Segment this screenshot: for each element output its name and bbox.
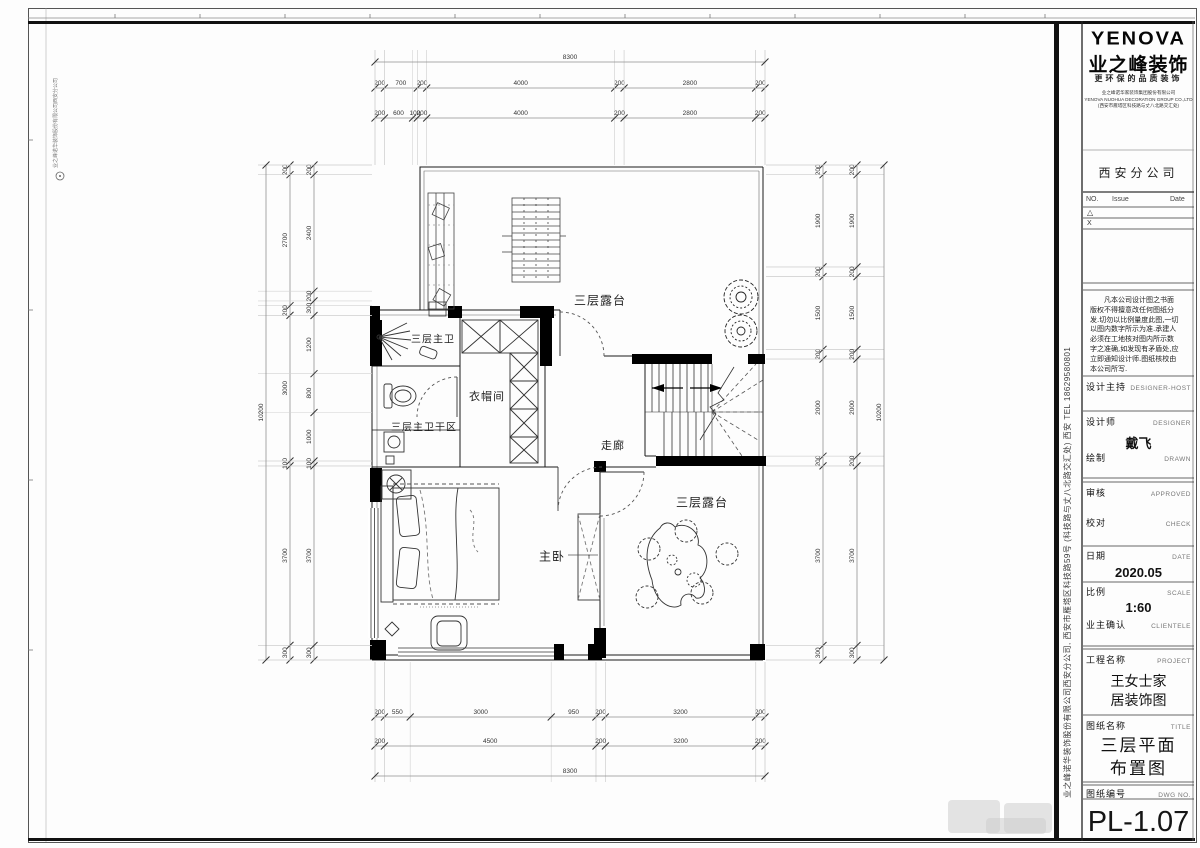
dim-label: 550 — [392, 709, 403, 716]
field-client-confirm: 业主确认 CLIENTELE — [1086, 618, 1191, 631]
dimension-annotations: 2007002004000200280020020060010020040002… — [258, 50, 888, 782]
dim-label: 200 — [815, 455, 822, 466]
dim-label: 4500 — [483, 738, 498, 745]
dim-label: 3700 — [849, 548, 856, 563]
field-design-host: 设计主持 DESIGNER-HOST — [1086, 380, 1191, 393]
drawing-number: PL-1.07 — [1083, 806, 1194, 839]
edge-strip-text: 业之峰诺华装饰股份有限公司西安分公司 — [52, 78, 59, 168]
brand-slogan: 更环保的品质装饰 — [1083, 73, 1194, 84]
dim-label: 200 — [306, 164, 313, 175]
field-drawing-title: 图纸名称 TITLE — [1086, 719, 1191, 732]
dim-label: 300 — [282, 647, 289, 658]
dim-label: 2800 — [683, 80, 698, 87]
date-value: 2020.05 — [1083, 565, 1194, 580]
field-project: 工程名称 PROJECT — [1086, 653, 1191, 666]
company-strip-text: 业之峰诺华装饰股份有限公司西安分公司, 西安市雁塔区科技路59号 (科技路与丈八… — [1062, 347, 1073, 798]
rev-col-issue: Issue — [1112, 196, 1129, 203]
dim-label: 3700 — [815, 548, 822, 563]
dim-label: 3200 — [673, 738, 688, 745]
brand-company-lines: 业之峰诺华家装饰集团股份有限公司 YENOVA NUOHUA DECORATIO… — [1083, 90, 1194, 110]
field-dwg-no: 图纸编号 DWG NO. — [1086, 787, 1191, 800]
dim-label: 200 — [417, 80, 428, 87]
dim-label: 200 — [374, 110, 385, 117]
dim-label: 300 — [815, 647, 822, 658]
dim-label: 300 — [849, 647, 856, 658]
dim-label: 200 — [755, 738, 766, 745]
dim-label: 200 — [306, 290, 313, 301]
dim-label: 4000 — [513, 80, 528, 87]
field-scale: 比例 SCALE — [1086, 585, 1191, 598]
dim-label: 200 — [849, 266, 856, 277]
dim-label: 300 — [306, 647, 313, 658]
room-label-cloakroom: 衣帽间 — [469, 388, 505, 404]
dim-label: 1900 — [815, 213, 822, 228]
dim-label: 8300 — [563, 54, 578, 61]
staircase — [645, 364, 763, 456]
dim-label: 2000 — [815, 400, 822, 415]
dim-label: 3700 — [282, 548, 289, 563]
dim-label: 1500 — [849, 305, 856, 320]
dim-label: 8300 — [563, 768, 578, 775]
dim-label: 200 — [282, 164, 289, 175]
dim-label: 200 — [614, 110, 625, 117]
watermark-blob — [986, 818, 1046, 834]
room-label-bath-dry-area: 三层主卫干区 — [391, 419, 457, 434]
dim-label: 600 — [393, 110, 404, 117]
doors — [558, 312, 644, 516]
room-label-master-bedroom: 主卧 — [539, 548, 565, 565]
nightstand-fan-icon — [382, 470, 411, 499]
dim-label: 200 — [282, 305, 289, 316]
dim-label: 200 — [755, 110, 766, 117]
dim-label: 200 — [417, 110, 428, 117]
dim-label: 950 — [568, 709, 579, 716]
floor-drain-icon — [385, 622, 399, 636]
plant-icons — [724, 280, 758, 347]
dim-label: 1900 — [849, 213, 856, 228]
dim-label: 200 — [849, 164, 856, 175]
dim-label: 3700 — [306, 548, 313, 563]
rev-col-no: NO. — [1086, 196, 1098, 203]
dim-label: 2000 — [849, 400, 856, 415]
dim-label: 10200 — [876, 403, 883, 421]
dim-label: 3000 — [282, 381, 289, 396]
dim-label: 200 — [374, 80, 385, 87]
drawing-sheet: 2007002004000200280020020060010020040002… — [0, 0, 1200, 848]
dim-label: 200 — [374, 709, 385, 716]
dim-label: 4000 — [513, 110, 528, 117]
dim-label: 200 — [815, 266, 822, 277]
dim-label: 700 — [395, 80, 406, 87]
floor-plan-drawing: 2007002004000200280020020060010020040002… — [0, 0, 1200, 848]
terrace-table-set — [636, 520, 738, 608]
dim-label: 1500 — [815, 305, 822, 320]
dim-label: 200 — [755, 80, 766, 87]
dim-label: 3200 — [673, 709, 688, 716]
armchair — [431, 616, 467, 650]
dim-label: 10200 — [258, 403, 265, 421]
tv-cabinet — [578, 514, 600, 600]
dim-label: 100 — [306, 458, 313, 469]
dim-label: 200 — [614, 80, 625, 87]
dim-label: 200 — [595, 709, 606, 716]
branch-name: 西安分公司 — [1083, 164, 1194, 181]
rev-row2-mark: X — [1087, 220, 1092, 227]
room-label-terrace-bottom: 三层露台 — [676, 494, 728, 511]
bed — [381, 484, 499, 607]
dim-label: 2800 — [683, 110, 698, 117]
project-name: 王女士家 居装饰图 — [1083, 672, 1194, 710]
room-label-terrace-top: 三层露台 — [574, 292, 626, 309]
dim-label: 2700 — [282, 233, 289, 248]
field-drawn: 绘制 DRAWN — [1086, 451, 1191, 464]
designer-name: 戴飞 — [1083, 433, 1194, 452]
room-label-master-bath: 三层主卫 — [411, 331, 455, 346]
dim-label: 2400 — [306, 225, 313, 240]
dim-label: 800 — [306, 387, 313, 398]
field-date: 日期 DATE — [1086, 549, 1191, 562]
dim-label: 1200 — [306, 337, 313, 352]
dim-label: 200 — [595, 738, 606, 745]
dim-label: 200 — [849, 348, 856, 359]
brand-logo-text: YENOVA — [1083, 29, 1194, 50]
dim-label: 200 — [755, 709, 766, 716]
disclaimer-text: 凡本公司设计图之书面 版权不得擅意改任何图纸分 发.切勿以比例量度此图,一切 以… — [1090, 296, 1191, 374]
dim-label: 200 — [815, 348, 822, 359]
dim-label: 200 — [815, 164, 822, 175]
rev-col-date: Date — [1170, 196, 1185, 203]
dim-label: 300 — [306, 302, 313, 313]
dim-label: 100 — [282, 458, 289, 469]
room-label-corridor: 走廊 — [601, 437, 625, 453]
field-check: 校对 CHECK — [1086, 516, 1191, 529]
field-designer: 设计师 DESIGNER — [1086, 415, 1191, 428]
pergola-grid — [502, 198, 566, 282]
field-approved: 审核 APPROVED — [1086, 486, 1191, 499]
scale-value: 1:60 — [1083, 600, 1194, 615]
sheet-border — [28, 9, 1197, 843]
dim-label: 200 — [849, 455, 856, 466]
dim-label: 3000 — [473, 709, 488, 716]
dim-label: 200 — [374, 738, 385, 745]
trellis — [428, 193, 454, 316]
dim-label: 1000 — [306, 429, 313, 444]
drawing-title: 三层平面 布置图 — [1083, 734, 1194, 780]
rev-row1-mark: △ — [1087, 208, 1093, 217]
